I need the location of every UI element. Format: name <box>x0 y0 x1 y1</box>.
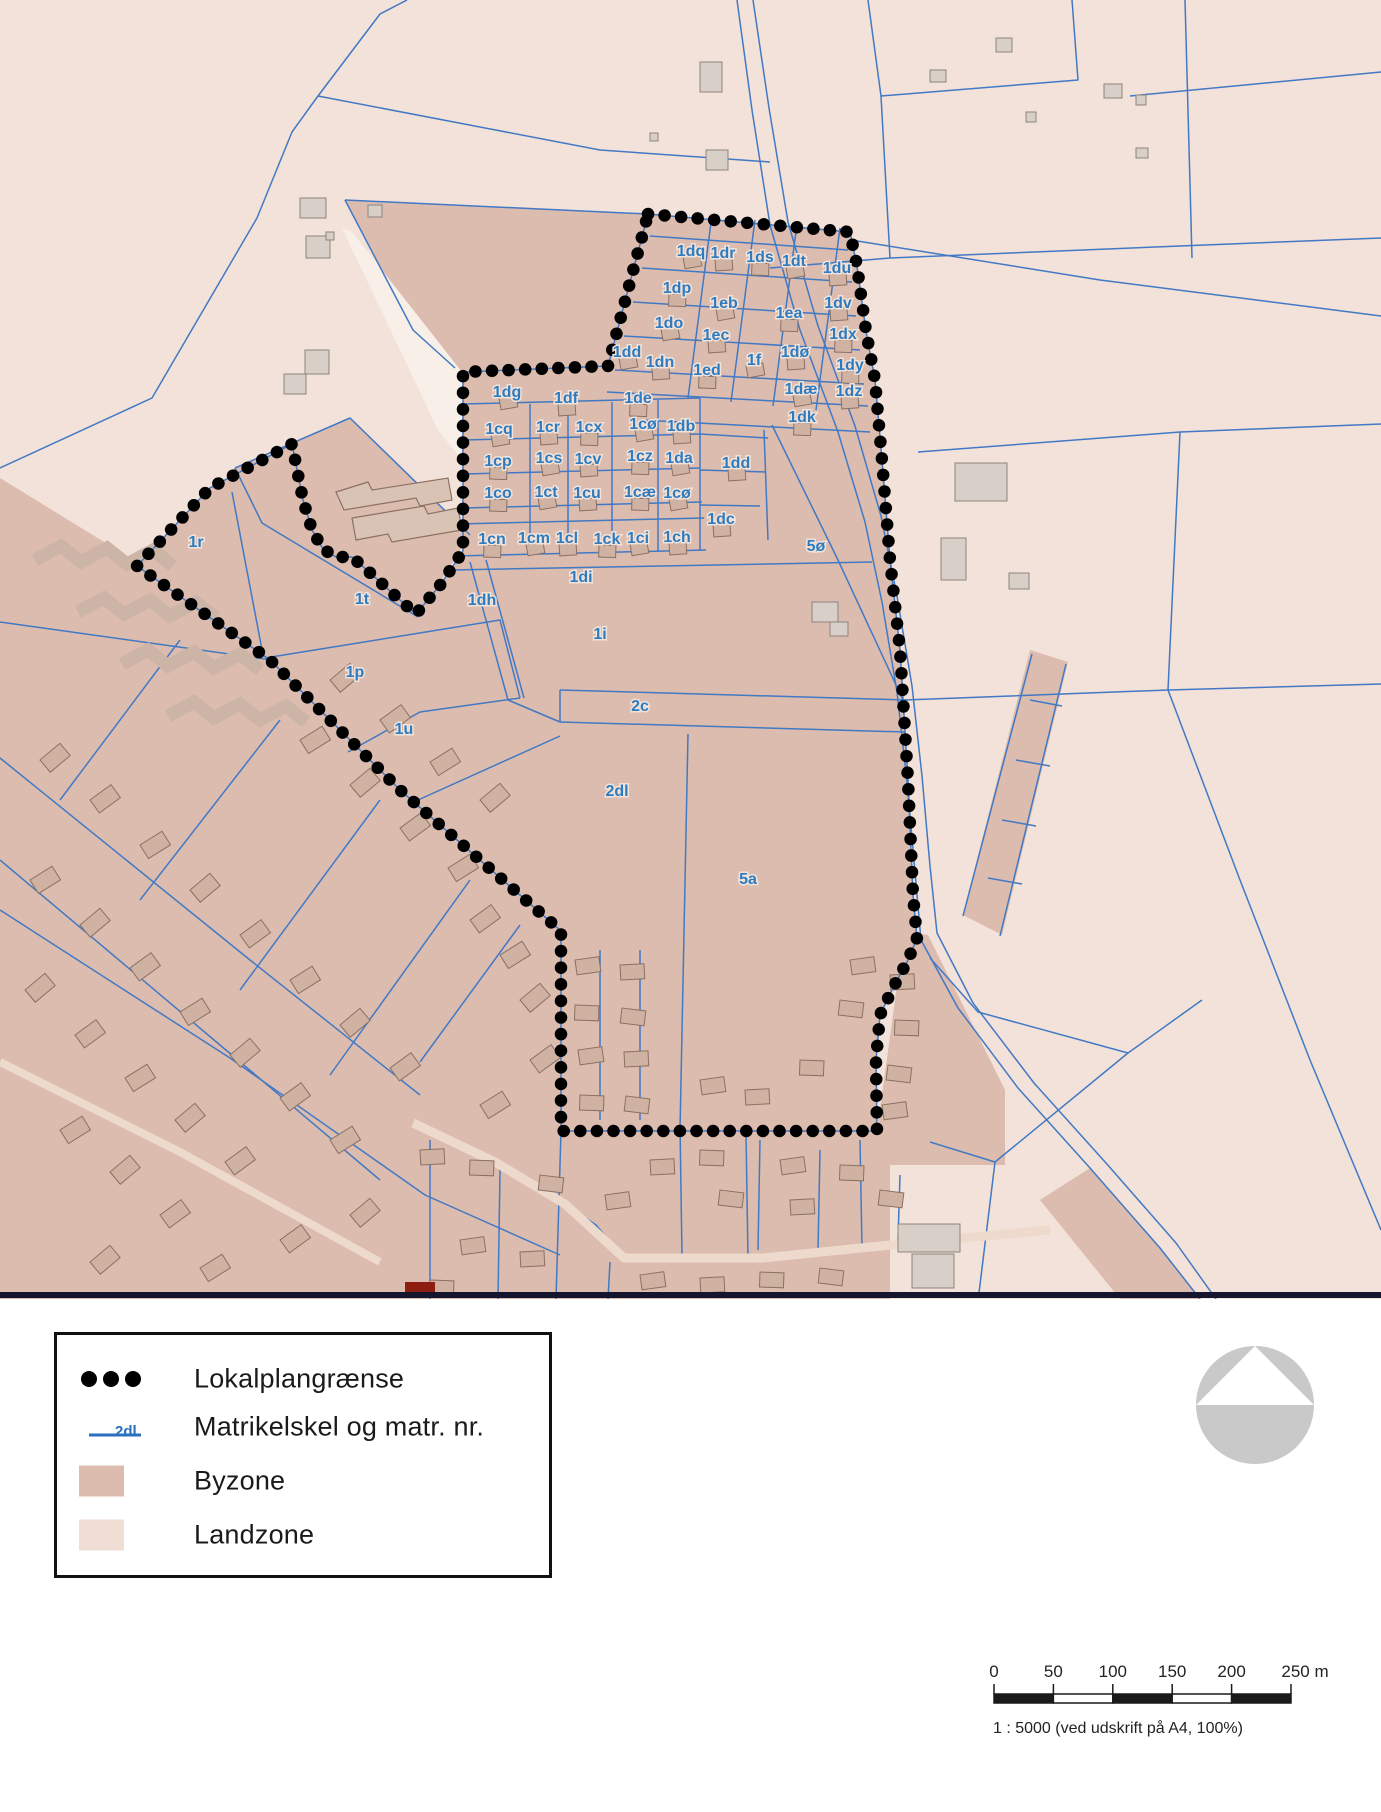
scale-bar-labels: 050100150200250 m <box>980 1662 1340 1682</box>
parcel-label: 1dæ <box>785 381 818 398</box>
parcel-label: 1t <box>355 591 370 608</box>
legend-item-byzone: Byzone <box>57 1461 549 1501</box>
parcel-label: 1dc <box>707 511 735 528</box>
parcel-label: 1cr <box>536 419 560 436</box>
scale-tick-label: 150 <box>1158 1662 1186 1682</box>
scale-caption: 1 : 5000 (ved udskrift på A4, 100%) <box>993 1720 1243 1738</box>
parcel-label: 1i <box>593 626 606 643</box>
parcel-label: 1ci <box>627 530 649 547</box>
scale-bar-graphic <box>980 1684 1310 1710</box>
legend-item-lokalplangraense: Lokalplangrænse <box>57 1359 549 1399</box>
parcel-label: 1cu <box>573 485 601 502</box>
parcel-label: 2c <box>631 698 649 715</box>
parcel-label: 1u <box>395 721 414 738</box>
parcel-label: 1dy <box>836 357 864 374</box>
parcel-label: 1ck <box>594 531 621 548</box>
parcel-label: 1do <box>655 315 684 332</box>
parcel-label: 1eb <box>710 295 738 312</box>
parcel-label: 1cø <box>663 485 691 502</box>
parcel-label: 1f <box>747 352 762 369</box>
parcel-label: 1dq <box>677 243 705 260</box>
parcel-label: 1ec <box>703 327 730 344</box>
parcel-label: 1dh <box>468 592 496 609</box>
matr-nr-sample: 2dl <box>115 1423 137 1440</box>
parcel-label: 1cs <box>536 450 563 467</box>
parcel-label: 5a <box>739 871 757 888</box>
site-map: 1dq1dr1ds1dt1du1dp1eb1dv1ea1do1ec1dx1dd1… <box>0 0 1381 1299</box>
parcel-label: 1dg <box>493 384 521 401</box>
parcel-label: 5ø <box>807 538 826 555</box>
landzone-swatch <box>79 1520 124 1551</box>
parcel-label: 1du <box>823 260 851 277</box>
byzone-swatch <box>79 1466 124 1497</box>
parcel-label: 1co <box>484 485 512 502</box>
parcel-label: 1db <box>667 418 696 435</box>
parcel-label: 1ct <box>534 484 558 501</box>
legend-item-matrikelskel: 2dl Matrikelskel og matr. nr. <box>57 1407 549 1447</box>
scale-tick-label: 250 m <box>1281 1662 1328 1682</box>
parcel-label: 1cz <box>627 448 653 465</box>
legend-label: Byzone <box>194 1466 285 1497</box>
parcel-label: 1dt <box>782 253 807 270</box>
scale-bar: 050100150200250 m 1 : 5000 (ved udskrift… <box>980 1662 1340 1752</box>
parcel-label: 1dø <box>781 344 810 361</box>
map-area[interactable]: 1dq1dr1ds1dt1du1dp1eb1dv1ea1do1ec1dx1dd1… <box>0 0 1381 1299</box>
parcel-label: 1cx <box>576 419 603 436</box>
parcel-label: 1dp <box>663 280 692 297</box>
scale-tick-label: 0 <box>989 1662 998 1682</box>
parcel-label: 1cæ <box>624 484 656 501</box>
parcel-label: 1ea <box>776 305 803 322</box>
parcel-label: 1p <box>346 664 365 681</box>
parcel-label: 1cv <box>575 451 602 468</box>
parcel-label: 1df <box>554 390 579 407</box>
parcel-label: 1cm <box>518 530 550 547</box>
parcel-label: 1ds <box>746 249 774 266</box>
parcel-label: 1dd <box>722 455 750 472</box>
legend-label: Lokalplangrænse <box>194 1364 404 1395</box>
parcel-label: 1dz <box>836 383 863 400</box>
parcel-label: 1dk <box>788 409 816 426</box>
parcel-label: 1cp <box>484 453 512 470</box>
north-arrow <box>1185 1335 1325 1475</box>
parcel-label: 1cø <box>629 416 657 433</box>
parcel-label: 1di <box>569 569 592 586</box>
parcel-label: 1ed <box>693 362 721 379</box>
scale-tick-label: 100 <box>1099 1662 1127 1682</box>
parcel-label: 1r <box>188 534 203 551</box>
parcel-label: 1dr <box>711 245 736 262</box>
page: { "colors": { "landzone": "#f3e2d9", "by… <box>0 0 1381 1812</box>
parcel-label: 1dn <box>646 354 674 371</box>
legend-label: Landzone <box>194 1520 314 1551</box>
parcel-label: 1ch <box>663 529 691 546</box>
legend-label: Matrikelskel og matr. nr. <box>194 1412 484 1443</box>
parcel-label: 1dx <box>829 326 857 343</box>
parcel-label: 2dl <box>605 783 628 800</box>
parcel-label: 1dd <box>613 344 641 361</box>
legend: Lokalplangrænse 2dl Matrikelskel og matr… <box>54 1332 552 1578</box>
boundary-dots-icon <box>71 1370 181 1388</box>
scale-tick-label: 200 <box>1217 1662 1245 1682</box>
parcel-label: 1cn <box>478 531 506 548</box>
parcel-label: 1cl <box>556 530 578 547</box>
parcel-label: 1da <box>665 450 693 467</box>
scale-tick-label: 50 <box>1044 1662 1063 1682</box>
parcel-label: 1cq <box>485 421 513 438</box>
map-frame-bottom <box>0 1292 1381 1298</box>
legend-item-landzone: Landzone <box>57 1515 549 1555</box>
parcel-label: 1de <box>624 390 652 407</box>
parcel-label: 1dv <box>824 295 852 312</box>
